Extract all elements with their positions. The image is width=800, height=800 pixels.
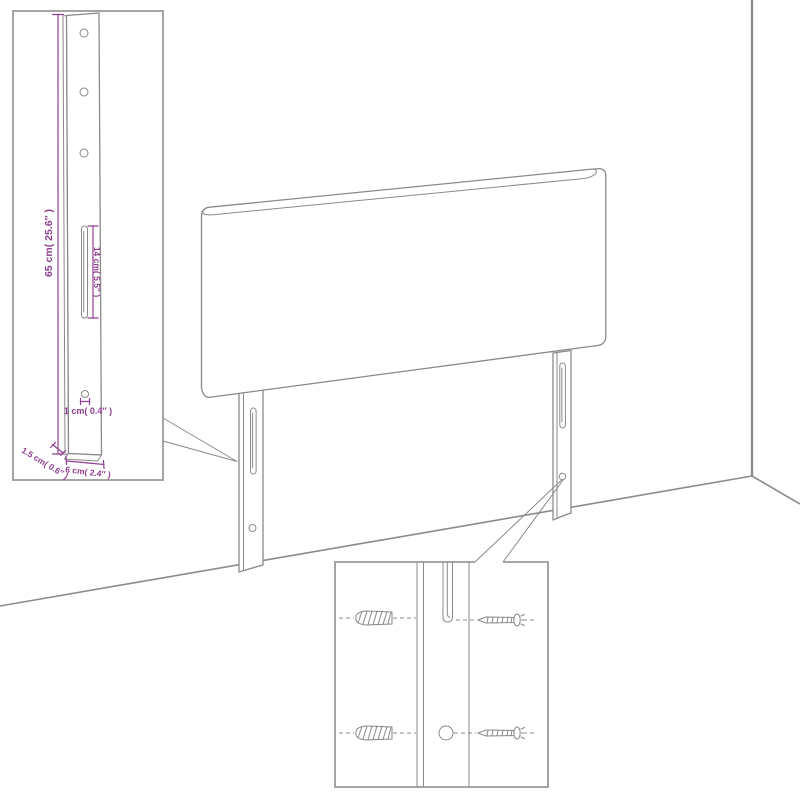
- floor-line-right: [752, 476, 800, 504]
- hardware-detail-inset: [335, 562, 548, 787]
- hardware-callout-lines: [475, 480, 564, 563]
- leg-detail-callout-lines: [163, 418, 237, 462]
- dim-label-hole: 1 cm( 0.4″ ): [64, 406, 112, 416]
- hardware-detail-border: [335, 562, 548, 787]
- callout-wedge-left: [163, 418, 237, 462]
- dim-label-height: 65 cm( 25.6″ ): [43, 209, 55, 277]
- assembly-diagram: 65 cm( 25.6″ ) 14 cm( 5.5″ ) 1 cm( 0.4″ …: [0, 0, 800, 800]
- left-leg: [239, 387, 263, 572]
- callout-wedge-right: [475, 480, 564, 563]
- leg-detail-inset: 65 cm( 25.6″ ) 14 cm( 5.5″ ) 1 cm( 0.4″ …: [13, 11, 163, 481]
- right-leg-hole: [559, 473, 566, 480]
- headboard-panel: [202, 169, 606, 398]
- left-leg-hole: [249, 525, 256, 532]
- panel-outline: [202, 169, 606, 398]
- dim-label-slot: 14 cm( 5.5″ ): [92, 247, 102, 298]
- diagram-svg: 65 cm( 25.6″ ) 14 cm( 5.5″ ) 1 cm( 0.4″ …: [0, 0, 800, 800]
- right-leg: [553, 351, 571, 521]
